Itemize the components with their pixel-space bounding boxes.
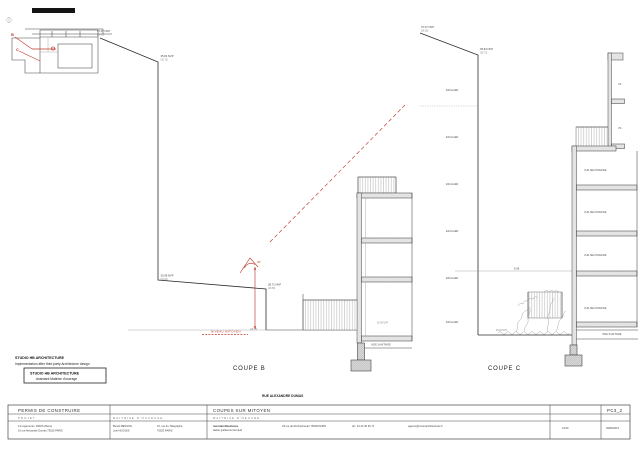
party-wall-profile-b: [100, 38, 266, 330]
facade-wall: [357, 193, 362, 343]
floor-slab: [577, 271, 638, 276]
level-label: (35.72): [480, 53, 488, 55]
crawlspace-label: VIDE SANITAIRE: [371, 344, 391, 347]
level-label: 37.07 NVP: [97, 29, 110, 33]
roof-slab: [357, 193, 412, 198]
projet-line1: 14 Logements, PARIS 20ème: [18, 424, 53, 428]
foundation-pier: [358, 343, 365, 360]
stair-label: ESCALIER: [446, 277, 459, 280]
stair-label: ESCALIER: [446, 183, 459, 186]
attribution-box-line2: Assistant Maitrise d'ouvrage: [36, 377, 77, 381]
room-label: VUE SECONDAIRE: [584, 307, 607, 310]
moa-header: MAITRISE D'OUVRAGE: [113, 416, 163, 420]
level-label: (36.95): [97, 35, 105, 37]
angle-label: 45°: [257, 260, 261, 264]
setback-slab: [572, 146, 616, 151]
attribution-line1: STUDIO HB ARCHITECTURE: [15, 356, 65, 360]
moe-address: 33 rue de Rochechouart 75009 PARIS: [282, 424, 326, 428]
moe-phone: tél : 01 42 40 36 71: [352, 424, 375, 428]
moa-addr2: 75020 PARIS: [157, 428, 173, 432]
room-label: VUE SECONDAIRE: [584, 211, 607, 214]
moa-name2: Joel HUGUES: [113, 428, 130, 432]
vs-label: VS: [618, 83, 622, 86]
moe-header: MAITRISE D'OEUVRE: [213, 416, 260, 420]
crawlspace-label: VIDE SANITAIRE: [602, 333, 622, 336]
attribution-box-line1: STUDIO HB ARCHITECTURE: [30, 372, 80, 376]
projet-line2: 16 rue Alexandre Dumas 75020 PARIS: [18, 428, 63, 432]
terrace-railing: [303, 300, 357, 330]
moe-email: agence@moonarchitectures.fr: [408, 424, 443, 428]
room-label: VUE SECONDAIRE: [584, 254, 607, 257]
section-cut-marks: B C: [11, 32, 56, 61]
coupe-b-title: COUPE B: [233, 366, 266, 372]
stair-label: ESCALIER: [446, 89, 459, 92]
level-label: 26.95 NVP: [377, 323, 389, 325]
projet-header: PROJET: [18, 416, 36, 420]
main-wall: [572, 146, 577, 345]
setback-railing: [576, 127, 608, 147]
coupe-c: 6.06 37.07 NVP (36.95) 35.84 NVP (35.72)…: [420, 25, 638, 372]
dim-label: 6.06: [514, 267, 520, 271]
level-label: 28.71 NVP: [268, 283, 281, 287]
foundation-footing: [351, 360, 371, 371]
building-section-b: VIDE SANITAIRE: [303, 177, 412, 371]
red-note: NIVEAU MITOYEN: [211, 330, 241, 334]
level-label: 26.06 NVP: [496, 330, 508, 332]
stair-label: ESCALIER: [446, 136, 459, 139]
scale-bar: [32, 8, 75, 13]
level-label: (36.95): [421, 31, 429, 33]
level-label: 30.08 NVP: [161, 274, 174, 278]
permit-title: PERMIS DE CONSTRUIRE: [18, 408, 80, 413]
trellis: [528, 292, 562, 318]
level-label: (35.72): [161, 60, 169, 62]
section-mark-b: B: [11, 32, 14, 37]
coupe-b: 37.07 NVP (36.95) 35.84 NVP (35.72) 30.0…: [97, 29, 412, 372]
moe-name2: atelier guillaume bernaud: [213, 428, 243, 432]
level-label: (26.16): [250, 329, 258, 331]
vegetation: [498, 291, 570, 335]
level-label: (29.96): [161, 279, 169, 281]
floor-slab: [362, 277, 413, 282]
drawing-date: 09/06/2013: [606, 426, 620, 430]
room-label: VUE SECONDAIRE: [584, 169, 607, 172]
title-block: PERMIS DE CONSTRUIRE COUPES SUR MITOYEN …: [8, 405, 630, 439]
vs-label: VS: [618, 127, 622, 130]
drawing-sheet: B C 37.07 NVP (36.95) 35.84 NVP (35.72) …: [0, 0, 640, 452]
ground-slab: [362, 336, 413, 341]
attribution-line2: Implementation after third party Archite…: [15, 362, 90, 366]
floor-slab: [362, 238, 413, 243]
moa-addr1: 16, rue du Télégraphe: [157, 424, 183, 428]
moa-name1: Benoit BESSON: [113, 424, 132, 428]
attribution-block: STUDIO HB ARCHITECTURE Implementation af…: [15, 356, 106, 383]
level-label: (28.59): [268, 288, 276, 290]
floor-slab: [577, 185, 638, 190]
moe-name1: moonarchitectures: [213, 424, 239, 428]
upper-wall: [608, 53, 612, 148]
section-mark-c: C: [16, 47, 19, 52]
floor-slab: [577, 231, 638, 236]
level-label: 37.07 NVP: [421, 25, 434, 29]
level-label: 35.84 NVP: [161, 54, 174, 58]
key-plan: B C: [7, 8, 112, 73]
drawing-title: COUPES SUR MITOYEN: [213, 408, 270, 413]
stair-label: ESCALIER: [446, 321, 459, 324]
drawing-scale: 1/100: [562, 426, 569, 430]
sheet-code: PC3_2: [607, 408, 623, 413]
floor-slab: [577, 322, 638, 327]
roof-guardrail: [358, 177, 396, 193]
sections-drawing: B C 37.07 NVP (36.95) 35.84 NVP (35.72) …: [0, 0, 640, 452]
foundation-footing: [565, 355, 582, 366]
small-slab: [612, 99, 625, 104]
level-label: 35.84 NVP: [480, 47, 493, 51]
street-label: RUE ALEXANDRE DUMAS: [262, 394, 304, 398]
coupe-c-title: COUPE C: [488, 366, 521, 372]
foundation-pier: [570, 345, 577, 355]
building-section-c: VS VS VUE SECONDAIRE VUE SECONDAIRE VUE …: [565, 53, 638, 366]
stair-label: ESCALIER: [446, 230, 459, 233]
